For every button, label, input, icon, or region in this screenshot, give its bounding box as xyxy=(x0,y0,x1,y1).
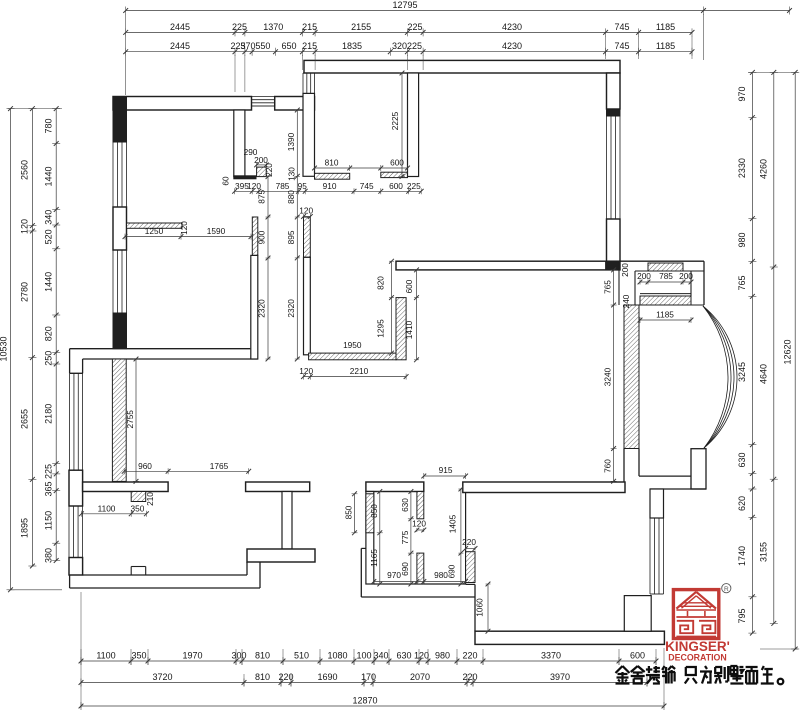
svg-text:970: 970 xyxy=(387,570,401,580)
svg-text:600: 600 xyxy=(389,181,403,191)
svg-text:220: 220 xyxy=(264,163,274,177)
svg-text:875: 875 xyxy=(257,189,267,203)
svg-text:745: 745 xyxy=(360,181,374,191)
svg-text:2210: 2210 xyxy=(350,366,369,376)
svg-text:650: 650 xyxy=(281,41,296,51)
svg-text:4230: 4230 xyxy=(502,41,522,51)
svg-text:690: 690 xyxy=(400,562,410,576)
svg-text:3370: 3370 xyxy=(541,651,561,661)
svg-text:100: 100 xyxy=(356,651,371,661)
svg-text:1440: 1440 xyxy=(43,272,53,292)
svg-text:895: 895 xyxy=(286,230,296,244)
svg-text:850: 850 xyxy=(344,505,354,519)
svg-text:220: 220 xyxy=(462,537,476,547)
svg-text:225: 225 xyxy=(43,464,53,479)
svg-text:12870: 12870 xyxy=(352,696,377,706)
svg-text:765: 765 xyxy=(603,280,613,294)
svg-text:1390: 1390 xyxy=(286,132,296,151)
svg-text:630: 630 xyxy=(396,651,411,661)
svg-text:1740: 1740 xyxy=(737,546,747,566)
svg-text:745: 745 xyxy=(614,22,629,32)
svg-text:550: 550 xyxy=(255,41,270,51)
svg-text:1185: 1185 xyxy=(656,310,674,320)
svg-text:120: 120 xyxy=(20,219,30,234)
svg-text:200: 200 xyxy=(637,271,651,281)
svg-text:520: 520 xyxy=(43,229,53,244)
svg-text:130: 130 xyxy=(287,167,297,181)
svg-text:95: 95 xyxy=(298,181,308,191)
svg-text:12620: 12620 xyxy=(783,339,793,364)
svg-text:2445: 2445 xyxy=(170,22,190,32)
svg-text:350: 350 xyxy=(130,503,144,513)
svg-text:2655: 2655 xyxy=(20,409,30,429)
svg-text:1370: 1370 xyxy=(263,22,283,32)
svg-text:1060: 1060 xyxy=(475,598,485,617)
svg-text:960: 960 xyxy=(138,461,152,471)
svg-text:785: 785 xyxy=(276,181,290,191)
svg-text:340: 340 xyxy=(373,651,388,661)
svg-text:1185: 1185 xyxy=(656,41,675,51)
svg-text:820: 820 xyxy=(376,276,386,290)
svg-text:1690: 1690 xyxy=(317,672,337,682)
svg-text:225: 225 xyxy=(407,181,421,191)
svg-text:1165: 1165 xyxy=(369,549,379,567)
svg-text:915: 915 xyxy=(439,465,453,475)
svg-text:795: 795 xyxy=(737,608,747,623)
svg-text:2320: 2320 xyxy=(286,299,296,318)
svg-text:1100: 1100 xyxy=(96,651,115,661)
svg-text:510: 510 xyxy=(294,651,309,661)
svg-text:765: 765 xyxy=(737,275,747,290)
svg-text:745: 745 xyxy=(614,41,629,51)
svg-text:2755: 2755 xyxy=(125,410,135,429)
svg-text:220: 220 xyxy=(278,672,293,682)
svg-text:810: 810 xyxy=(255,651,270,661)
svg-text:320: 320 xyxy=(392,41,407,51)
svg-text:3240: 3240 xyxy=(603,367,613,386)
svg-text:1970: 1970 xyxy=(182,651,202,661)
svg-text:810: 810 xyxy=(325,158,339,168)
svg-text:850: 850 xyxy=(369,504,379,518)
svg-text:2070: 2070 xyxy=(410,672,430,682)
svg-text:60: 60 xyxy=(221,176,231,186)
svg-text:225: 225 xyxy=(407,22,422,32)
svg-text:1950: 1950 xyxy=(343,340,362,350)
svg-text:1895: 1895 xyxy=(20,518,30,538)
svg-text:2560: 2560 xyxy=(20,160,30,180)
svg-text:12795: 12795 xyxy=(392,0,417,10)
svg-text:2780: 2780 xyxy=(20,282,30,302)
svg-text:910: 910 xyxy=(323,181,337,191)
svg-text:120: 120 xyxy=(299,366,313,376)
svg-text:1765: 1765 xyxy=(210,461,229,471)
svg-text:DECORATION: DECORATION xyxy=(668,653,726,663)
svg-text:215: 215 xyxy=(302,22,317,32)
svg-text:215: 215 xyxy=(302,41,317,51)
svg-text:240: 240 xyxy=(621,294,631,308)
svg-text:3245: 3245 xyxy=(737,362,747,382)
svg-text:120: 120 xyxy=(299,206,313,216)
svg-text:1250: 1250 xyxy=(145,226,164,236)
svg-text:775: 775 xyxy=(400,530,410,544)
svg-text:300: 300 xyxy=(231,651,246,661)
svg-text:220: 220 xyxy=(462,651,477,661)
svg-text:200: 200 xyxy=(679,271,693,281)
svg-text:880: 880 xyxy=(286,190,296,204)
svg-text:1405: 1405 xyxy=(448,514,458,533)
svg-text:1590: 1590 xyxy=(207,226,226,236)
svg-text:1835: 1835 xyxy=(342,41,362,51)
svg-text:250: 250 xyxy=(43,351,53,366)
svg-text:620: 620 xyxy=(737,496,747,511)
svg-text:1410: 1410 xyxy=(404,320,414,339)
svg-text:780: 780 xyxy=(43,118,53,133)
svg-text:980: 980 xyxy=(435,651,450,661)
svg-text:2225: 2225 xyxy=(390,111,400,130)
svg-text:1100: 1100 xyxy=(98,503,116,513)
svg-text:200: 200 xyxy=(620,263,630,277)
svg-text:10530: 10530 xyxy=(0,336,9,361)
svg-text:2445: 2445 xyxy=(170,41,190,51)
svg-text:980: 980 xyxy=(737,232,747,247)
svg-text:1295: 1295 xyxy=(376,319,386,338)
svg-text:3720: 3720 xyxy=(152,672,172,682)
svg-text:120: 120 xyxy=(414,651,429,661)
svg-text:225: 225 xyxy=(232,22,247,32)
svg-text:630: 630 xyxy=(400,498,410,512)
svg-text:225: 225 xyxy=(407,41,422,51)
svg-text:120: 120 xyxy=(179,221,189,235)
svg-text:4640: 4640 xyxy=(759,364,769,384)
svg-text:2320: 2320 xyxy=(257,299,267,318)
svg-text:810: 810 xyxy=(255,672,270,682)
svg-text:4260: 4260 xyxy=(759,159,769,179)
svg-text:380: 380 xyxy=(43,548,53,563)
svg-text:1080: 1080 xyxy=(327,651,347,661)
svg-text:370: 370 xyxy=(240,41,255,51)
svg-text:1185: 1185 xyxy=(656,22,675,32)
svg-text:120: 120 xyxy=(247,181,261,191)
svg-text:630: 630 xyxy=(737,452,747,467)
svg-text:820: 820 xyxy=(43,326,53,341)
svg-text:210: 210 xyxy=(145,492,155,506)
svg-text:120: 120 xyxy=(412,519,426,529)
svg-text:340: 340 xyxy=(43,210,53,225)
svg-text:3155: 3155 xyxy=(759,542,769,562)
svg-text:785: 785 xyxy=(659,271,673,281)
svg-text:350: 350 xyxy=(131,651,146,661)
svg-text:1440: 1440 xyxy=(43,166,53,186)
svg-text:4230: 4230 xyxy=(502,22,522,32)
svg-text:690: 690 xyxy=(446,564,456,578)
svg-text:2155: 2155 xyxy=(351,22,371,32)
svg-text:2180: 2180 xyxy=(43,404,53,424)
svg-text:600: 600 xyxy=(630,651,645,661)
svg-text:970: 970 xyxy=(737,86,747,101)
svg-text:365: 365 xyxy=(43,481,53,496)
svg-text:R: R xyxy=(724,586,729,593)
svg-text:760: 760 xyxy=(603,459,613,473)
svg-text:900: 900 xyxy=(257,230,267,244)
svg-text:3970: 3970 xyxy=(550,672,570,682)
svg-text:600: 600 xyxy=(404,279,414,293)
svg-text:220: 220 xyxy=(462,672,477,682)
svg-text:2330: 2330 xyxy=(737,158,747,178)
svg-text:170: 170 xyxy=(361,672,376,682)
svg-text:1150: 1150 xyxy=(43,511,53,530)
